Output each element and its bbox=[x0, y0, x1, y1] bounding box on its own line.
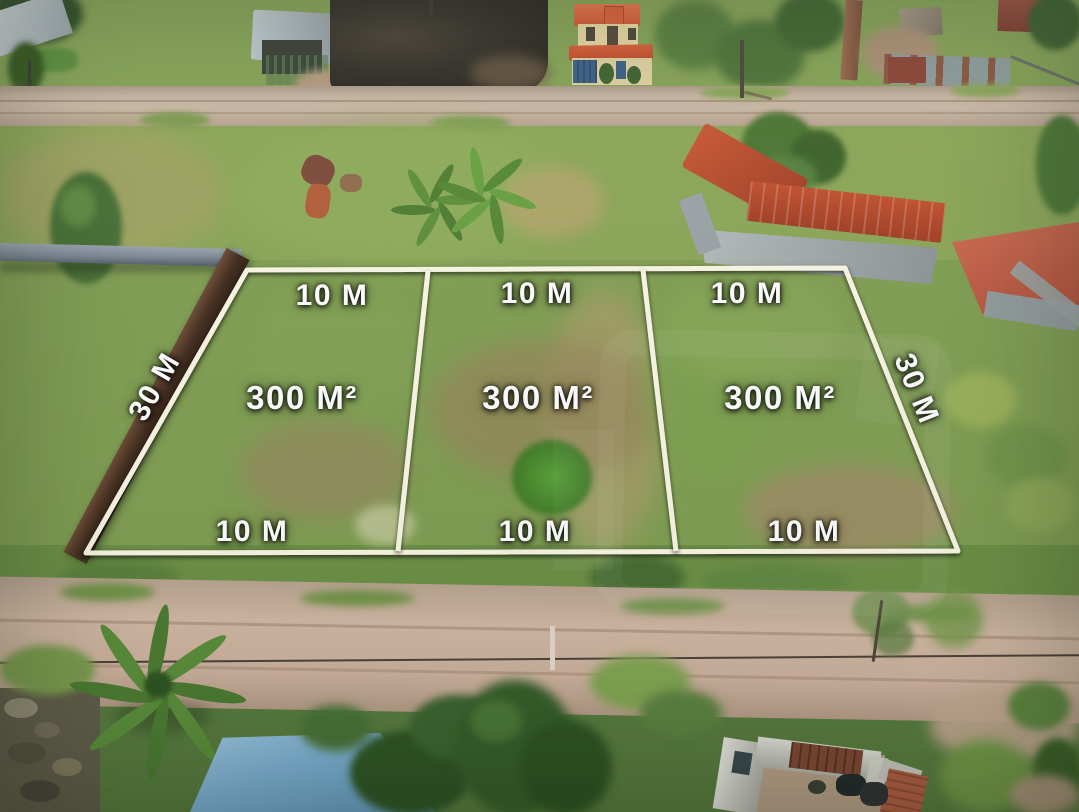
plot-3-area-label: 300 M² bbox=[724, 379, 836, 417]
plot-1-bottom-width-label: 10 M bbox=[216, 515, 289, 549]
plot-divider-2 bbox=[643, 270, 676, 551]
plot-2-bottom-width-label: 10 M bbox=[499, 515, 572, 549]
plot-divider-1 bbox=[398, 271, 428, 551]
plot-3-top-width-label: 10 M bbox=[711, 277, 784, 311]
plot-1-top-width-label: 10 M bbox=[296, 279, 369, 313]
plot-2-area-label: 300 M² bbox=[482, 379, 594, 417]
plot-2-top-width-label: 10 M bbox=[501, 277, 574, 311]
aerial-photo: 10 M 10 M 10 M 300 M² 300 M² 300 M² 10 M… bbox=[0, 0, 1079, 812]
plot-3-bottom-width-label: 10 M bbox=[768, 515, 841, 549]
plot-1-area-label: 300 M² bbox=[246, 379, 358, 417]
